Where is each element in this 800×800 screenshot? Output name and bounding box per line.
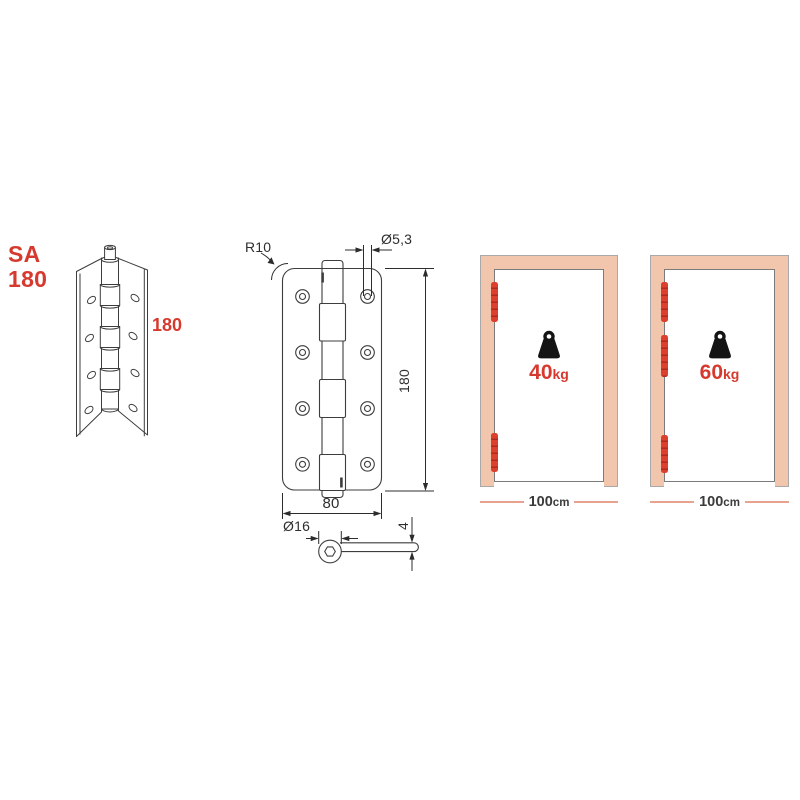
door-width-unit: cm: [553, 497, 570, 509]
hinge-marker: [661, 435, 668, 473]
weight-value: 60: [700, 361, 723, 385]
knuckle-diameter-label: Ø16: [283, 518, 310, 534]
product-code: SA 180: [8, 242, 47, 291]
weight-value: 40: [529, 361, 552, 385]
dimension-rule: [574, 501, 618, 503]
hinge-technical-drawing: [225, 225, 465, 590]
hinge-3d-view: [70, 242, 188, 442]
door-width-dimension: 100 cm: [650, 494, 789, 510]
hinge-side-view: [319, 540, 419, 563]
hinge-marker: [491, 433, 498, 472]
knuckle-circle: [319, 540, 342, 563]
product-series: SA: [8, 242, 47, 267]
hinge-marker: [661, 282, 668, 322]
door-width-value: 100: [699, 494, 723, 510]
max-weight-indicator: 60 kg: [650, 330, 789, 385]
door-width-label: 100 cm: [699, 494, 740, 510]
max-weight-indicator: 40 kg: [480, 330, 618, 385]
product-model: 180: [8, 267, 47, 292]
door-diagram-2-hinges: 40 kg: [480, 255, 618, 487]
dimension-rule: [650, 501, 694, 503]
weight-unit: kg: [723, 366, 739, 382]
door-diagram-3-hinges: 60 kg: [650, 255, 789, 487]
weight-label: 60 kg: [700, 361, 740, 385]
thickness-dimension-label: 4: [395, 519, 411, 533]
weight-unit: kg: [553, 366, 569, 382]
kettlebell-weight-icon: [705, 330, 735, 360]
hinge-height-label: 180: [152, 315, 182, 336]
dimension-rule: [480, 501, 524, 503]
door-width-unit: cm: [723, 497, 740, 509]
hinge-spec-sheet: SA 180: [0, 0, 800, 800]
dimension-rule: [745, 501, 789, 503]
hole-diameter-label: Ø5,3: [381, 231, 412, 247]
door-width-label: 100 cm: [529, 494, 570, 510]
hinge-marker: [491, 282, 498, 322]
height-dimension-label: 180: [396, 364, 412, 398]
width-dimension-label: 80: [311, 495, 351, 512]
kettlebell-weight-icon: [534, 330, 564, 360]
door-width-dimension: 100 cm: [480, 494, 618, 510]
door-width-value: 100: [529, 494, 553, 510]
corner-radius-label: R10: [245, 239, 271, 255]
weight-label: 40 kg: [529, 361, 569, 385]
leaf-profile: [340, 543, 418, 552]
